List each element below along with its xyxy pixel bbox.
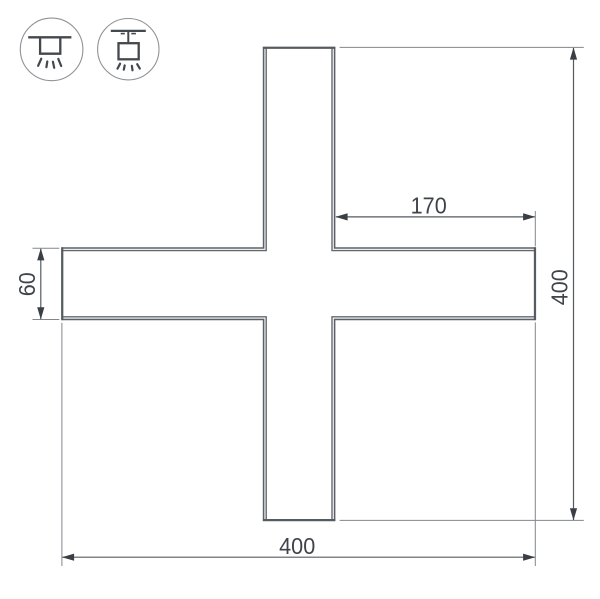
svg-text:60: 60 [14,272,40,296]
svg-text:400: 400 [546,269,572,305]
svg-text:170: 170 [411,193,447,219]
svg-text:400: 400 [279,533,315,559]
